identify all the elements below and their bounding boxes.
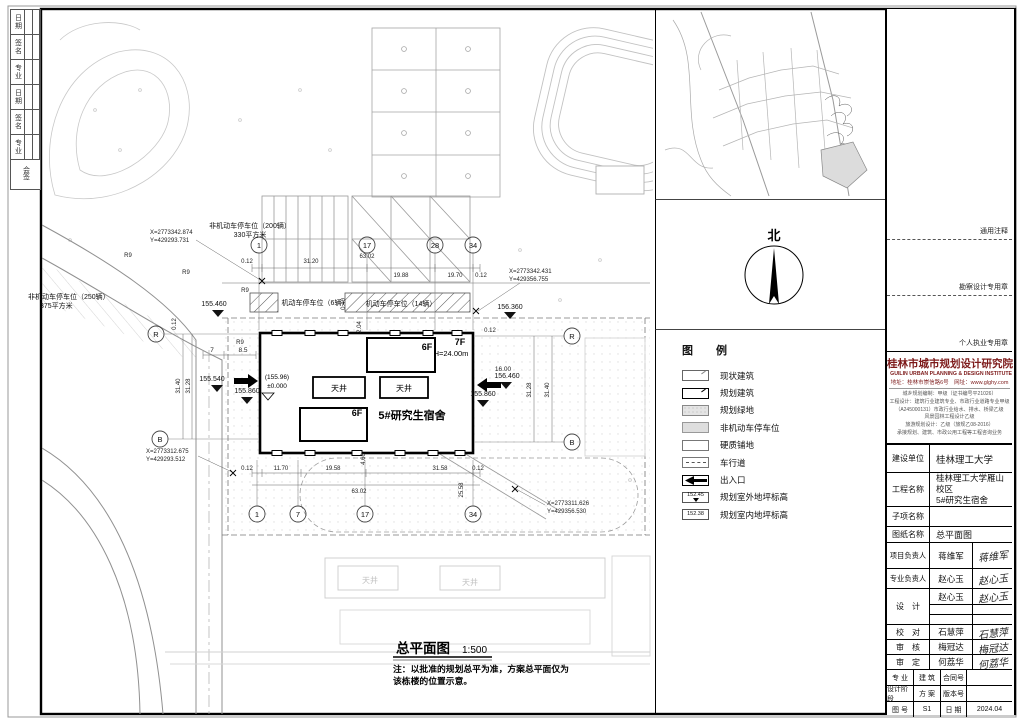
countersign-cell: 专业 [11, 135, 25, 160]
dim-label: 31.58 [432, 466, 448, 472]
dim-label: 11.70 [274, 466, 289, 472]
elevation-value: 155.540 [199, 376, 224, 383]
bike-parking-swatch [682, 422, 709, 433]
building-zero-level: ±0.000 [267, 383, 287, 390]
parking-label: 机动车停车位（14辆） [366, 299, 437, 308]
coordinate-x: X=2773311.626 [547, 501, 590, 507]
field-label: 合同号 [941, 670, 967, 685]
faint-courtyard-label: 天井 [462, 577, 478, 587]
institute-address: 地址：桂林市崇信路6号 网址：www.glghy.com [889, 377, 1010, 389]
dim-label: 63.02 [359, 254, 375, 260]
field-label: 专业负责人 [887, 569, 930, 588]
indoor-elevation-swatch: 152.38 [682, 509, 709, 520]
signature: 赵心玉 [977, 569, 1009, 588]
institute-credentials: 城乡规划编制：甲级（证书编号平21026） 工程设计：建筑行业建筑专业、市政行业… [887, 391, 1012, 438]
project-value: 桂林理工大学雁山校区 5#研究生宿舍 [930, 473, 1012, 506]
legend-item: 非机动车停车位 [682, 419, 885, 436]
countersign-strip: 日期 签名 专业 日期 签名 专业 会签 [10, 9, 41, 190]
legend-item-label: 现状建筑 [720, 370, 754, 382]
coordinate-y: Y=429356.530 [547, 509, 587, 515]
grid-label: B [157, 435, 162, 444]
subitem-value [930, 507, 1012, 526]
grid-label: 17 [363, 241, 371, 250]
dim-label: 19.88 [393, 273, 409, 279]
dim-label: 25.58 [459, 482, 465, 498]
elevation-value: 155.860 [234, 388, 259, 395]
dim-label: 31.20 [303, 259, 319, 265]
elevation-value: 156.460 [494, 373, 519, 380]
parking-label: 非机动车停车位（250辆） [28, 292, 110, 301]
legend-item: 硬质铺地 [682, 437, 885, 454]
building-level: (155.96) [265, 374, 289, 381]
dim-label: 63.02 [351, 489, 367, 495]
coordinate-x: X=2773342.874 [150, 230, 193, 236]
planned-building: 天井 天井 6F 7F H=24.00m 6F 5#研究生宿舍 (155.96)… [260, 331, 473, 456]
drawing-note: 注：以批准的规划总平为准，方案总平面仅为 [393, 663, 569, 674]
field-label: 工程名称 [887, 473, 930, 506]
institute-name-en: GUILIN URBAN PLANNING & DESIGN INSTITUTE [890, 371, 1009, 377]
signature: 蒋维军 [977, 546, 1009, 565]
legend-item: 车行道 [682, 454, 885, 471]
coordinate-y: Y=429293.512 [146, 457, 186, 463]
elevation-value: 155.860 [470, 391, 495, 398]
person-name: 梅冠达 [930, 640, 973, 654]
dim-label: 31.40 [545, 382, 551, 398]
dim-label: 0.12 [475, 273, 487, 279]
legend-item-label: 出入口 [720, 474, 746, 486]
tower-floors-label: 7F [455, 337, 466, 347]
grid-label: B [569, 438, 574, 447]
dim-label: 19.58 [325, 466, 341, 472]
coordinate-y: Y=429356.755 [509, 277, 549, 283]
building-height-label: H=24.00m [434, 349, 469, 358]
radius-label: R9 [124, 253, 132, 259]
dim-label: 8.5 [238, 347, 247, 354]
signature: 赵心玉 [977, 587, 1009, 606]
approver-row: 审 定 何荔华 何荔华 [887, 655, 1012, 670]
radius-label: R9 [182, 270, 190, 276]
signature: 何荔华 [977, 655, 1009, 669]
field-label: 设 计 [887, 589, 930, 624]
subitem-row: 子项名称 [887, 507, 1012, 527]
person-name: 蒋维军 [930, 543, 973, 568]
person-name: 石慧萍 [930, 625, 973, 639]
coordinate-x: X=2773342.431 [509, 269, 552, 275]
elevation-sample-value: 152.38 [687, 512, 704, 518]
parking-label: 330平方米 [234, 230, 267, 239]
dim-label: 0.12 [172, 318, 178, 330]
countersign-cell: 专业 [11, 60, 25, 85]
countersign-cell: 日期 [11, 85, 25, 110]
existing-building-swatch [682, 370, 709, 381]
legend-item-label: 车行道 [720, 457, 746, 469]
title-block: 通用注释 勘察设计专用章 个人执业专用章 桂林市城市规划设计研究院 GUILIN… [885, 9, 1014, 715]
signature: 梅冠达 [977, 640, 1009, 654]
project-row: 工程名称 桂林理工大学雁山校区 5#研究生宿舍 [887, 473, 1012, 507]
legend-title: 图 例 [682, 342, 885, 358]
field-label: 日 期 [941, 702, 967, 717]
institute-header: 桂林市城市规划设计研究院 GUILIN URBAN PLANNING & DES… [887, 352, 1012, 445]
elevation-value: 155.460 [201, 301, 226, 308]
project-manager-row: 项目负责人 蒋维军 蒋维军 [887, 543, 1012, 569]
legend-item: 152.45 规划室外地坪标高 [682, 489, 885, 506]
entrance-arrow-icon [682, 475, 709, 486]
field-label: 设计阶段 [887, 686, 914, 701]
radius-label: R9 [236, 340, 244, 346]
dim-label: 0.12 [241, 466, 253, 472]
legend-item-label: 非机动车停车位 [720, 422, 780, 434]
legend-item-label: 硬质铺地 [720, 439, 754, 451]
field-label: 版本号 [941, 686, 967, 701]
building-name: 5#研究生宿舍 [378, 408, 446, 422]
seal-area-label: 通用注释 [980, 226, 1008, 236]
field-label: 审 定 [887, 655, 930, 669]
grid-label: 1 [257, 241, 261, 250]
field-label: 图 号 [887, 702, 914, 717]
legend-item: 现状建筑 [682, 367, 885, 384]
basketball-courts [372, 28, 500, 197]
grid-label: 28 [431, 241, 439, 250]
drawing-scale: 1:500 [462, 645, 487, 656]
dim-label: 7 [210, 347, 214, 354]
seal-area-label: 勘察设计专用章 [959, 282, 1008, 292]
courtyard-label: 天井 [396, 383, 412, 393]
signature: 石慧萍 [977, 625, 1009, 639]
legend-item: 152.38 规划室内地坪标高 [682, 506, 885, 523]
parking-label: 机动车停车位（6辆） [282, 298, 349, 307]
dim-label: 0.12 [484, 328, 496, 334]
checker-row: 校 对 石慧萍 石慧萍 [887, 625, 1012, 640]
location-map-inset [655, 9, 885, 200]
owner-row: 建设单位 桂林理工大学 [887, 445, 1012, 473]
field-label: 审 核 [887, 640, 930, 654]
titleblock-footer: 专 业 建 筑 合同号 设计阶段 方 案 版本号 图 号 S1 日 期 2024… [887, 670, 1012, 717]
field-label: 图纸名称 [887, 527, 930, 542]
north-arrow-panel: 北 [655, 200, 885, 330]
drawing-note: 该栋楼的位置示意。 [393, 675, 472, 686]
field-label: 校 对 [887, 625, 930, 639]
reviewer-row: 审 核 梅冠达 梅冠达 [887, 640, 1012, 655]
grid-label: 7 [296, 510, 300, 519]
grid-label: 34 [469, 241, 477, 250]
institute-name-cn: 桂林市城市规划设计研究院 [887, 356, 1012, 371]
designer-row: 设 计 赵心玉 赵心玉 [887, 589, 1012, 625]
dim-label: 2.04 [357, 321, 363, 333]
bike-shed-blocks [262, 196, 470, 282]
coordinate-y: Y=429293.731 [150, 238, 190, 244]
dim-label: 16.00 [495, 366, 512, 373]
field-value: S1 [914, 702, 941, 717]
floors-label: 6F [352, 408, 363, 418]
field-value: 建 筑 [914, 670, 941, 685]
field-value [967, 686, 1012, 701]
legend-panel: 图 例 现状建筑 规划建筑 规划绿地 非机动车停车位 硬质铺地 车行道 出入口 … [655, 330, 885, 714]
outdoor-elevation-swatch: 152.45 [682, 492, 709, 503]
lead-row: 专业负责人 赵心玉 赵心玉 [887, 569, 1012, 589]
floors-label: 6F [422, 342, 433, 352]
legend-item-label: 规划建筑 [720, 387, 754, 399]
parking-label: 非机动车停车位（200辆） [209, 221, 291, 230]
legend-item: 出入口 [682, 471, 885, 488]
elevation-value: 156.360 [497, 304, 522, 311]
vehicular-road-swatch [682, 457, 709, 468]
small-existing-building [596, 166, 644, 194]
dim-label: 4.60 [361, 453, 367, 465]
courtyard-label: 天井 [331, 383, 347, 393]
countersign-footer: 会签 [11, 160, 40, 185]
planned-green-swatch [682, 405, 709, 416]
coordinate-x: X=2773312.675 [146, 449, 189, 455]
survey-design-seal-area: 勘察设计专用章 [887, 240, 1012, 296]
person-name: 何荔华 [930, 655, 973, 669]
location-map [656, 9, 884, 198]
owner-value: 桂林理工大学 [930, 445, 1012, 472]
seal-area-label: 个人执业专用章 [959, 338, 1008, 348]
grid-label: 1 [255, 510, 259, 519]
radius-label: R9 [241, 288, 249, 294]
countersign-cell: 签名 [11, 110, 25, 135]
grid-label: 34 [469, 510, 477, 519]
drawing-name-row: 图纸名称 总平面图 [887, 527, 1012, 543]
person-name: 赵心玉 [930, 589, 973, 604]
grid-label: R [153, 330, 159, 339]
field-value: 2024.04 [967, 702, 1012, 717]
dim-label: 31.28 [527, 382, 533, 398]
parking-label: 375平方米 [40, 301, 73, 310]
dim-label: 31.40 [176, 378, 182, 394]
legend-item: 规划绿地 [682, 402, 885, 419]
dim-label: 0.12 [472, 466, 484, 472]
drawing-title-block: 总平面图 1:500 注：以批准的规划总平为准，方案总平面仅为 该栋楼的位置示意… [393, 640, 569, 686]
dim-label: 0.12 [241, 259, 253, 265]
field-label: 建设单位 [887, 445, 930, 472]
north-label: 北 [767, 228, 780, 243]
countersign-cell: 签名 [11, 35, 25, 60]
field-value: 方 案 [914, 686, 941, 701]
field-label: 项目负责人 [887, 543, 930, 568]
field-label: 子项名称 [887, 507, 930, 526]
legend-item-label: 规划室外地坪标高 [720, 491, 788, 503]
site-plan-sheet: { "plan": { "title": "总平面图", "scale": "1… [0, 0, 1024, 723]
grid-label: R [569, 332, 575, 341]
grid-label: 17 [361, 510, 369, 519]
field-value [967, 670, 1012, 685]
road-slope-hatch [42, 262, 196, 362]
planned-building-swatch [682, 388, 709, 399]
legend-item-label: 规划室内地坪标高 [720, 509, 788, 521]
faint-courtyard-label: 天井 [362, 575, 378, 585]
legend-item: 规划建筑 [682, 384, 885, 401]
drawing-name-value: 总平面图 [930, 527, 1012, 542]
dim-label: 19.70 [447, 273, 463, 279]
personal-practice-seal-area: 个人执业专用章 [887, 296, 1012, 352]
person-name: 赵心玉 [930, 569, 973, 588]
general-notes-seal-area: 通用注释 [887, 9, 1012, 240]
countersign-cell: 日期 [11, 10, 25, 35]
north-needle [769, 248, 779, 304]
hard-paving-swatch [682, 440, 709, 451]
dim-label: 31.28 [186, 378, 192, 394]
legend-item-label: 规划绿地 [720, 404, 754, 416]
drawing-title: 总平面图 [396, 640, 450, 656]
